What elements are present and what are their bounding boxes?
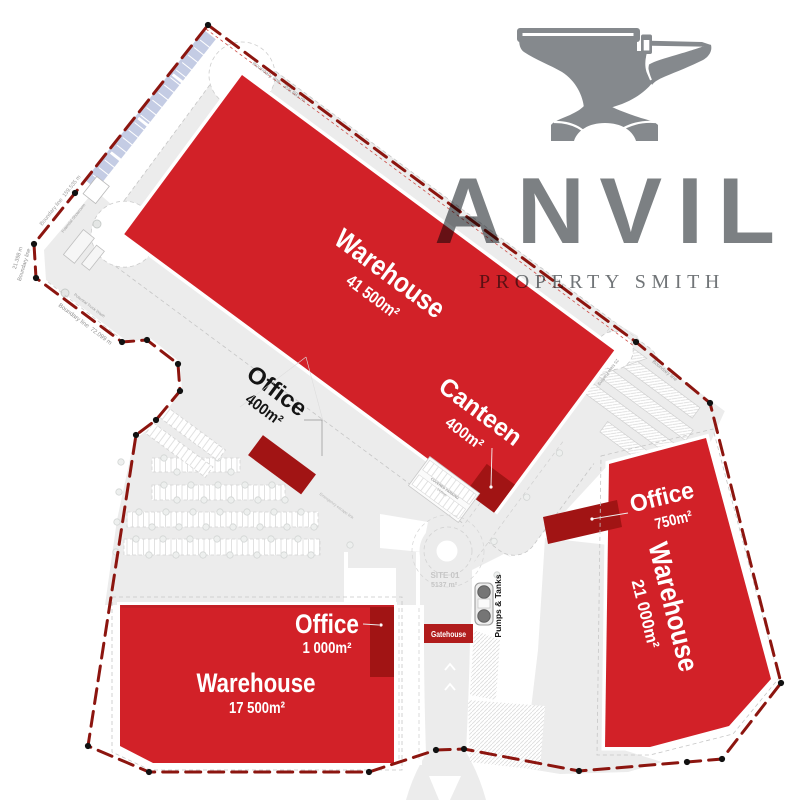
svg-text:SITE 01: SITE 01 <box>431 571 460 580</box>
svg-text:5137 m²: 5137 m² <box>431 582 458 589</box>
svg-text:PROPERTY SMITH: PROPERTY SMITH <box>479 271 725 293</box>
svg-text:Gatehouse: Gatehouse <box>431 629 466 639</box>
svg-text:Warehouse: Warehouse <box>197 668 316 698</box>
svg-text:17 500m²: 17 500m² <box>229 700 285 717</box>
svg-text:Office: Office <box>295 609 359 639</box>
svg-text:ANVIL: ANVIL <box>434 158 790 263</box>
svg-text:1 000m²: 1 000m² <box>303 640 352 657</box>
svg-text:Pumps & Tanks: Pumps & Tanks <box>493 574 503 637</box>
